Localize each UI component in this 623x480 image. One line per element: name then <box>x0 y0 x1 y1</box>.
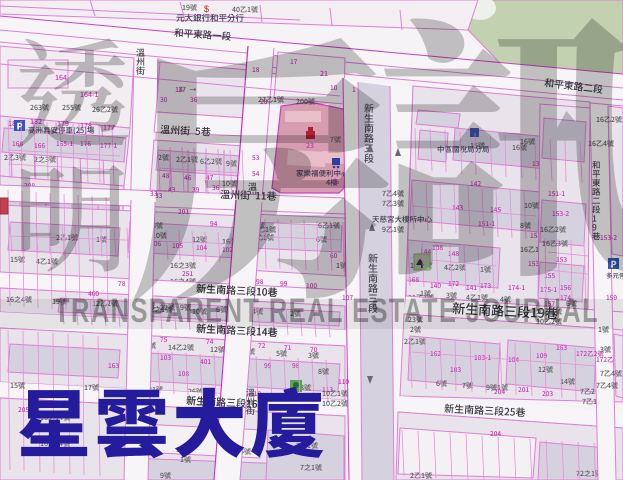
svg-text:TRANSPARENT REAL ESTATE JOURNA: TRANSPARENT REAL ESTATE JOURNAL <box>54 293 599 330</box>
svg-text:$: $ <box>204 4 209 14</box>
